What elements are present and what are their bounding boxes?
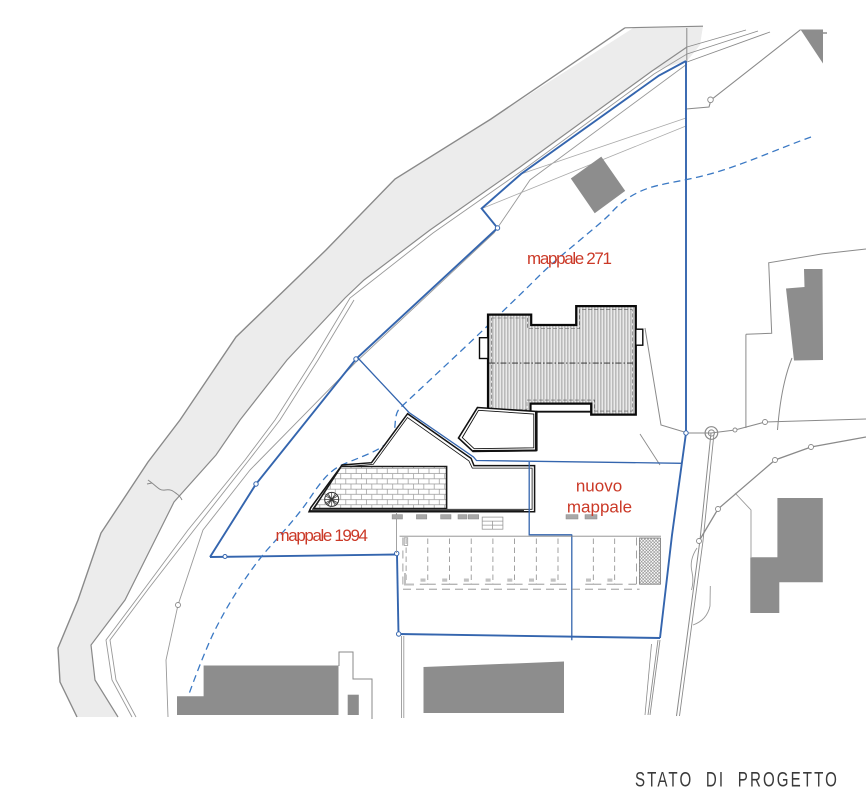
svg-text:STATO DI PROGETTO: STATO DI PROGETTO	[635, 768, 839, 792]
svg-text:mappale 1994: mappale 1994	[276, 526, 369, 545]
svg-text:mappale 271: mappale 271	[527, 249, 612, 268]
svg-text:mappale: mappale	[567, 498, 632, 517]
svg-text:nuovo: nuovo	[576, 476, 622, 495]
